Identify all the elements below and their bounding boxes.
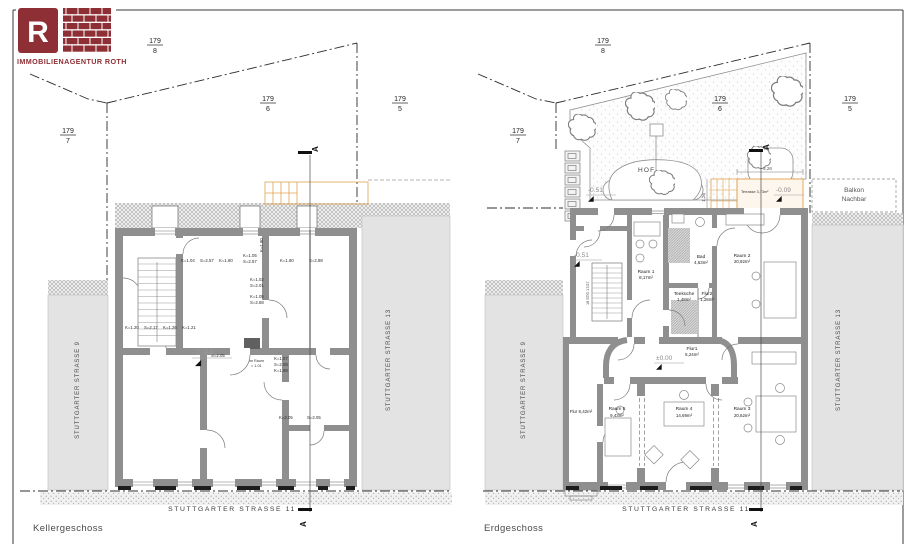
parcel-den: 8 [153, 48, 157, 55]
parcel-179-7-left: 179 7 [60, 128, 76, 145]
kg-ann-21: K=1.80 [259, 238, 264, 252]
section-a-bottom-left: A [299, 521, 308, 527]
floorplan-sheet: R IMMOBILIENAGENTUR ROTH [0, 0, 920, 544]
parcel-num: 179 [394, 96, 406, 103]
eg-neighbor-right-label: STUTTGARTER STRASSE 13 [836, 309, 842, 411]
kg-ann-1: S=2.57 [200, 258, 214, 263]
kg-ann-9: K=1.05 [250, 294, 264, 299]
eg-stair-note: 19 STG 17/27 [586, 281, 590, 305]
eg-balkon-line1: Balkon [844, 187, 864, 194]
kg-ann-19: K=2.05 [279, 415, 293, 420]
eg-planter [650, 124, 663, 136]
parcel-179-5-left: 179 5 [392, 96, 408, 113]
kg-neighbor-left-label: STUTTGARTER STRASSE 9 [75, 341, 81, 439]
plan-titles: Kellergeschoss Erdgeschoss [33, 523, 543, 534]
parcel-179-8-left: 179 8 [147, 38, 163, 55]
section-a-bottom-right: A [750, 521, 759, 527]
kg-level-text: -2.94 [192, 347, 214, 357]
eg-room5-name: Raum 5 [609, 406, 626, 412]
kg-ann-16: K=1.07 [274, 356, 288, 361]
agency-logo: R IMMOBILIENAGENTUR ROTH [16, 6, 127, 68]
parcel-den: 5 [848, 106, 852, 113]
parcel-num: 179 [149, 38, 161, 45]
parcel-179-5-right: 179 5 [842, 96, 858, 113]
kg-room-note-2: = 1.01 [251, 364, 262, 368]
eg-street-band [485, 492, 903, 505]
eg-street-front-label: STUTTGARTER STRASSE 11 [622, 506, 750, 513]
eg-level-entry-1: -0.51 [588, 187, 603, 194]
logo-brick-icon [63, 8, 111, 53]
kg-ann-12: S=2.17 [144, 325, 158, 330]
eg-room5-area: 9,43m² [610, 413, 624, 418]
kg-ann-11: K=1.20 [125, 325, 139, 330]
parcel-den: 5 [398, 106, 402, 113]
eg-room4-area: 14,69m² [676, 413, 693, 418]
erdgeschoss-plan: HOF Terrasse 3,73m² 3,26 1,26 Balkon Nac… [485, 53, 903, 505]
kg-ann-18: K=1.88 [274, 368, 288, 373]
kg-ann-4: S=2.57 [243, 259, 257, 264]
parcel-num: 179 [597, 38, 609, 45]
eg-terrasse-label: Terrasse 3,73m² [741, 190, 769, 194]
agency-name: IMMOBILIENAGENTUR ROTH [17, 57, 127, 66]
parcel-den: 8 [601, 48, 605, 55]
eg-neighbor-right-building [812, 225, 903, 490]
eg-bad-area: 4,53m² [694, 260, 708, 265]
eg-balkon-nachbar: Balkon Nachbar [812, 179, 896, 212]
kg-ann-13: K=1.26 [163, 325, 177, 330]
kg-ann-7: K=1.02 [250, 277, 264, 282]
eg-teekueche-tiles [671, 300, 697, 334]
eg-room1-area: 8,17m² [639, 275, 653, 280]
kg-right-neighbor-hatch [362, 203, 450, 216]
eg-bad-tiles [668, 228, 690, 263]
section-a-top-left: A [311, 146, 320, 152]
eg-room2-area: 20,92m² [734, 259, 751, 264]
parcel-179-7-right: 179 7 [510, 128, 526, 145]
kg-street-band [40, 492, 452, 505]
kg-left-neighbor-hatch [48, 280, 108, 295]
kg-ann-6: S=2.88 [309, 258, 323, 263]
kg-street-front-label: STUTTGARTER STRASSE 11 [168, 506, 296, 513]
eg-hof-label: HOF [638, 167, 655, 174]
floorplan-drawing: R IMMOBILIENAGENTUR ROTH [0, 0, 920, 544]
eg-neighbor-left-label: STUTTGARTER STRASSE 9 [521, 341, 527, 439]
kg-ann-8: S=2.01 [250, 283, 264, 288]
eg-level-terrace: -0.09 [776, 187, 791, 194]
eg-flur1-area: 5,24m² [685, 352, 699, 357]
eg-balkon-line2: Nachbar [842, 196, 867, 203]
eg-right-neighbor-hatch [812, 213, 903, 225]
eg-flur-label: Flur 8,42m² [570, 409, 593, 414]
eg-level-ground: ±0.00 [656, 355, 673, 362]
parcel-179-6-left: 179 6 [260, 96, 276, 113]
parcel-num: 179 [62, 128, 74, 135]
eg-flur2-area: 1,28m² [700, 297, 714, 302]
kg-ann-0: K=1.04 [181, 258, 195, 263]
eg-room4-name: Raum 4 [676, 406, 693, 412]
parcel-num: 179 [844, 96, 856, 103]
kg-ann-20: S=2.05 [307, 415, 321, 420]
kg-title: Kellergeschoss [33, 523, 103, 534]
eg-room3-name: Raum 3 [734, 406, 751, 412]
eg-dim-depth: 1,26 [701, 193, 706, 202]
eg-room3-area: 20,62m² [734, 413, 751, 418]
kg-ann-14: K=1.21 [182, 325, 196, 330]
kg-neighbor-right-label: STUTTGARTER STRASSE 13 [386, 309, 392, 411]
eg-level-entry-2: -0.51 [574, 252, 589, 259]
kg-neighbor-right-building [362, 216, 450, 490]
eg-title: Erdgeschoss [484, 523, 543, 534]
section-a-top-right: A [762, 144, 771, 150]
eg-teekueche-area: 1,48m² [677, 297, 691, 302]
kg-ann-17: S=2.08 [274, 362, 288, 367]
kg-staircase [138, 258, 176, 346]
eg-left-neighbor-hatch [485, 280, 563, 295]
parcel-den: 6 [718, 106, 722, 113]
kg-room-note-1: im Raum [249, 359, 264, 363]
kg-ann-3: K=1.05 [243, 253, 257, 258]
parcel-num: 179 [714, 96, 726, 103]
parcel-den: 6 [266, 106, 270, 113]
parcel-num: 179 [262, 96, 274, 103]
kg-ann-10: S=2.88 [250, 300, 264, 305]
kg-ann-5: K=1.80 [280, 258, 294, 263]
parcel-num: 179 [512, 128, 524, 135]
parcel-den: 7 [66, 138, 70, 145]
kg-terrace-overlay [265, 182, 368, 204]
eg-dim-width: 3,26 [763, 166, 772, 171]
parcel-179-8-right: 179 8 [595, 38, 611, 55]
parcel-den: 7 [516, 138, 520, 145]
logo-letter: R [27, 16, 49, 49]
kg-ann-2: K=1.80 [219, 258, 233, 263]
